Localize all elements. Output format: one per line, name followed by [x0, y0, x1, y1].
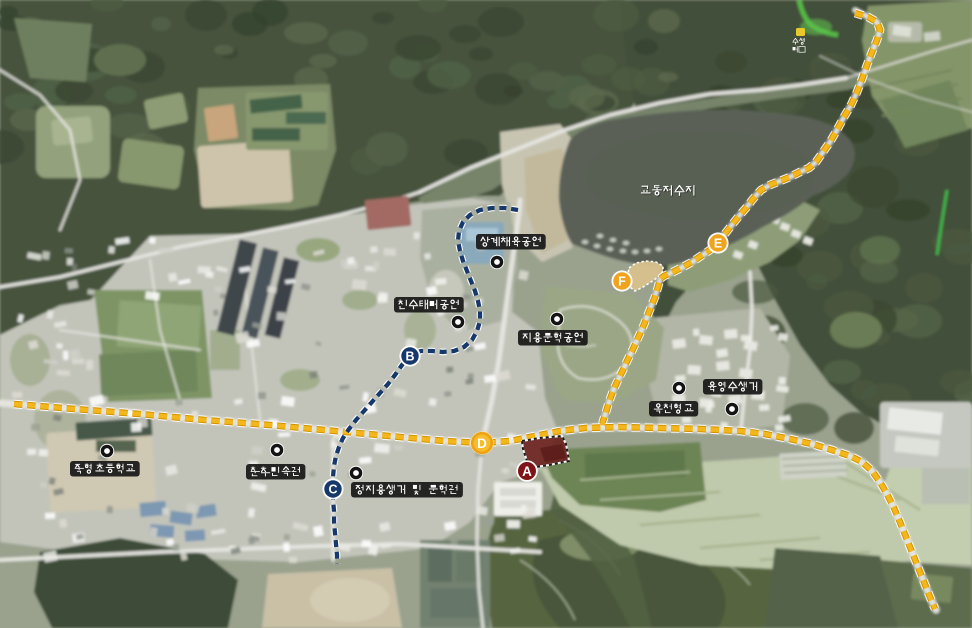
svg-text:D: D	[477, 436, 487, 451]
svg-text:C: C	[328, 483, 337, 497]
svg-text:E: E	[714, 237, 722, 251]
svg-text:A: A	[522, 464, 532, 479]
svg-text:B: B	[405, 350, 414, 364]
svg-text:F: F	[618, 275, 626, 289]
